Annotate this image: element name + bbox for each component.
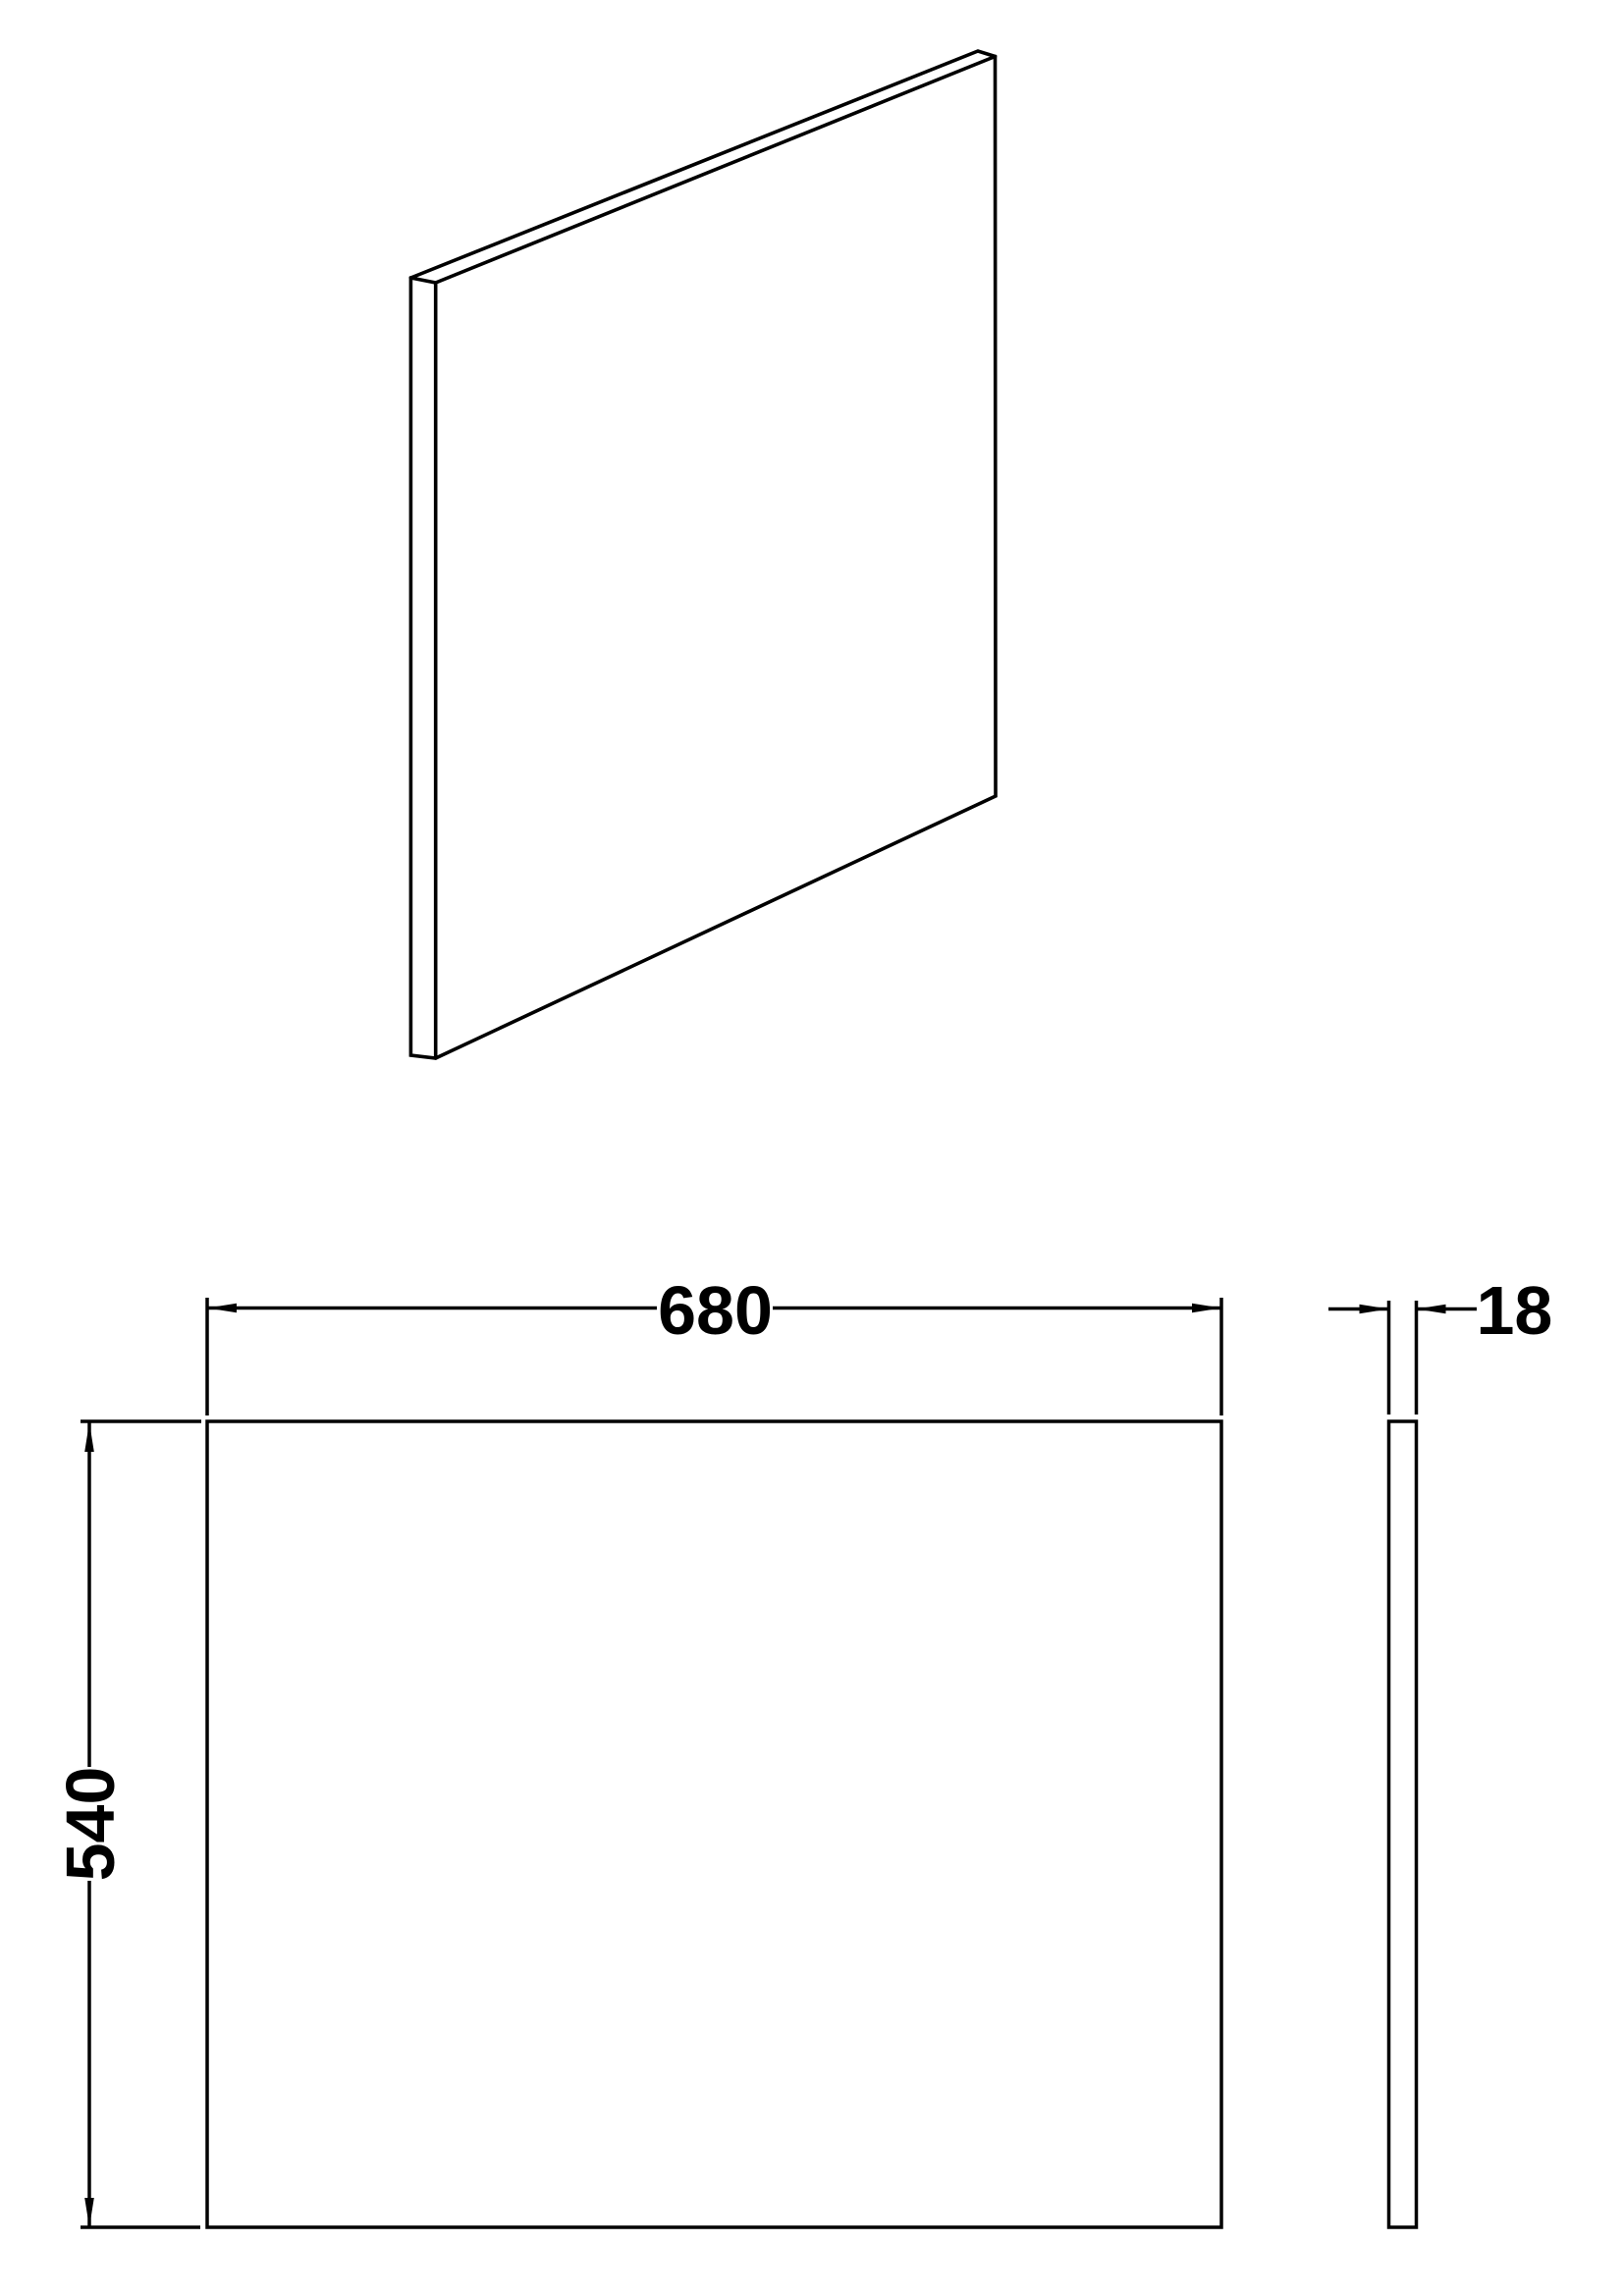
svg-text:680: 680 xyxy=(658,1272,773,1349)
svg-text:540: 540 xyxy=(52,1767,129,1882)
svg-text:18: 18 xyxy=(1477,1272,1553,1349)
